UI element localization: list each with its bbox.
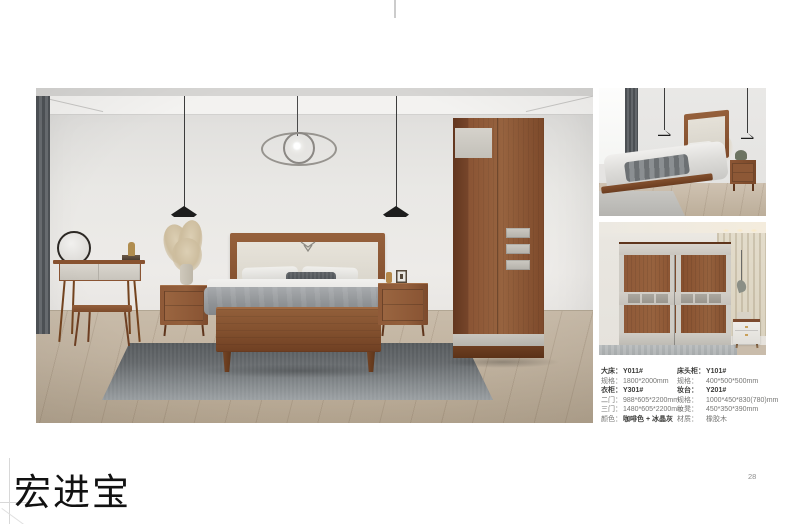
spec-row-material: 材质： 橡胶木	[677, 415, 778, 425]
spec-value: 1800*2000mm	[623, 377, 669, 387]
spec-row-color: 颜色： 咖啡色 + 冰晶灰	[601, 415, 683, 425]
spec-label: 规格：	[677, 396, 706, 406]
spec-value: Y201#	[706, 386, 726, 396]
spec-label: 三门：	[601, 405, 623, 415]
spec-row-three-door: 三门： 1480*605*2200mm	[601, 405, 683, 415]
plant-decor	[735, 150, 747, 160]
nightstand-drawers	[732, 163, 754, 182]
pendant-lamp-shade	[741, 133, 754, 139]
hanging-decor-cord	[741, 250, 742, 282]
pendant-lamp-cord	[747, 88, 748, 133]
spec-label: 妆台：	[677, 386, 706, 396]
brand-logo-text: 宏进宝	[14, 474, 131, 512]
nightstand-decor	[737, 312, 751, 319]
spec-label: 材质：	[677, 415, 706, 425]
specs-column-left: 大床： Y011# 规格： 1800*2000mm 衣柜： Y301# 二门： …	[601, 367, 683, 425]
photo-bed-detail	[599, 88, 766, 216]
downlight-glow	[751, 229, 757, 232]
main-photo-bedroom-scene	[36, 88, 593, 423]
spec-label: 二门：	[601, 396, 623, 406]
photo-vignette	[36, 88, 593, 423]
wardrobe-band-insert	[709, 294, 721, 303]
spec-label: 规格：	[677, 377, 706, 387]
drawer-knob	[745, 326, 748, 328]
wardrobe-band-insert	[656, 294, 668, 303]
downlight-glow	[723, 229, 729, 232]
sliding-wardrobe	[619, 242, 731, 346]
spec-value: 450*350*390mm	[706, 405, 758, 415]
wardrobe-band-insert	[695, 294, 707, 303]
wardrobe-band-insert	[642, 294, 654, 303]
area-rug	[599, 191, 685, 216]
nightstand	[730, 160, 756, 184]
spec-value: 400*500*500mm	[706, 377, 758, 387]
spec-label: 床头柜：	[677, 367, 706, 377]
pendant-lamp-cord	[664, 88, 665, 130]
spec-label: 规格：	[601, 377, 623, 387]
spec-value: Y011#	[623, 367, 643, 377]
spec-value: 1000*450*830(780)mm	[706, 396, 778, 406]
spec-row-nightstand-size: 规格： 400*500*500mm	[677, 377, 778, 387]
page-number: 28	[748, 472, 756, 481]
catalog-page: 大床： Y011# 规格： 1800*2000mm 衣柜： Y301# 二门： …	[0, 0, 800, 524]
spec-row-bed: 大床： Y011#	[601, 367, 683, 377]
crop-mark-top	[394, 0, 396, 18]
specs-column-right: 床头柜： Y101# 规格： 400*500*500mm 妆台： Y201# 规…	[677, 367, 778, 425]
spec-value: 1480*605*2200mm	[623, 405, 683, 415]
nightstand-drawer-divider	[735, 330, 758, 331]
spec-row-dresser-size: 规格： 1000*450*830(780)mm	[677, 396, 778, 406]
drawer-knob	[745, 334, 748, 336]
pendant-lamp-shade	[658, 130, 671, 136]
product-specs: 大床： Y011# 规格： 1800*2000mm 衣柜： Y301# 二门： …	[601, 367, 797, 429]
spec-row-dresser: 妆台： Y201#	[677, 386, 778, 396]
spec-label: 妆凳：	[677, 405, 706, 415]
spec-row-stool: 妆凳： 450*350*390mm	[677, 405, 778, 415]
spec-row-two-door: 二门： 988*605*2200mm	[601, 396, 683, 406]
spec-value: Y301#	[623, 386, 643, 396]
spec-label: 衣柜：	[601, 386, 623, 396]
spec-value: Y101#	[706, 367, 726, 377]
spec-label: 颜色：	[601, 415, 623, 425]
spec-row-wardrobe: 衣柜： Y301#	[601, 386, 683, 396]
spec-label: 大床：	[601, 367, 623, 377]
photo-wardrobe-detail	[599, 222, 766, 355]
spec-value: 橡胶木	[706, 415, 727, 425]
wardrobe-door-seam	[674, 255, 675, 346]
wood-floor	[737, 345, 766, 355]
wardrobe-band-insert	[628, 294, 640, 303]
nightstand-leg	[752, 184, 754, 191]
downlight-glow	[737, 229, 743, 232]
spec-row-nightstand: 床头柜： Y101#	[677, 367, 778, 377]
white-nightstand	[733, 319, 760, 344]
nightstand-leg	[733, 184, 735, 191]
wardrobe-band-insert	[681, 294, 693, 303]
curtain	[599, 228, 620, 340]
spec-value: 988*605*2200mm	[623, 396, 679, 406]
wardrobe-top-band	[619, 244, 731, 255]
spec-row-bed-size: 规格： 1800*2000mm	[601, 377, 683, 387]
spec-value: 咖啡色 + 冰晶灰	[623, 415, 673, 425]
